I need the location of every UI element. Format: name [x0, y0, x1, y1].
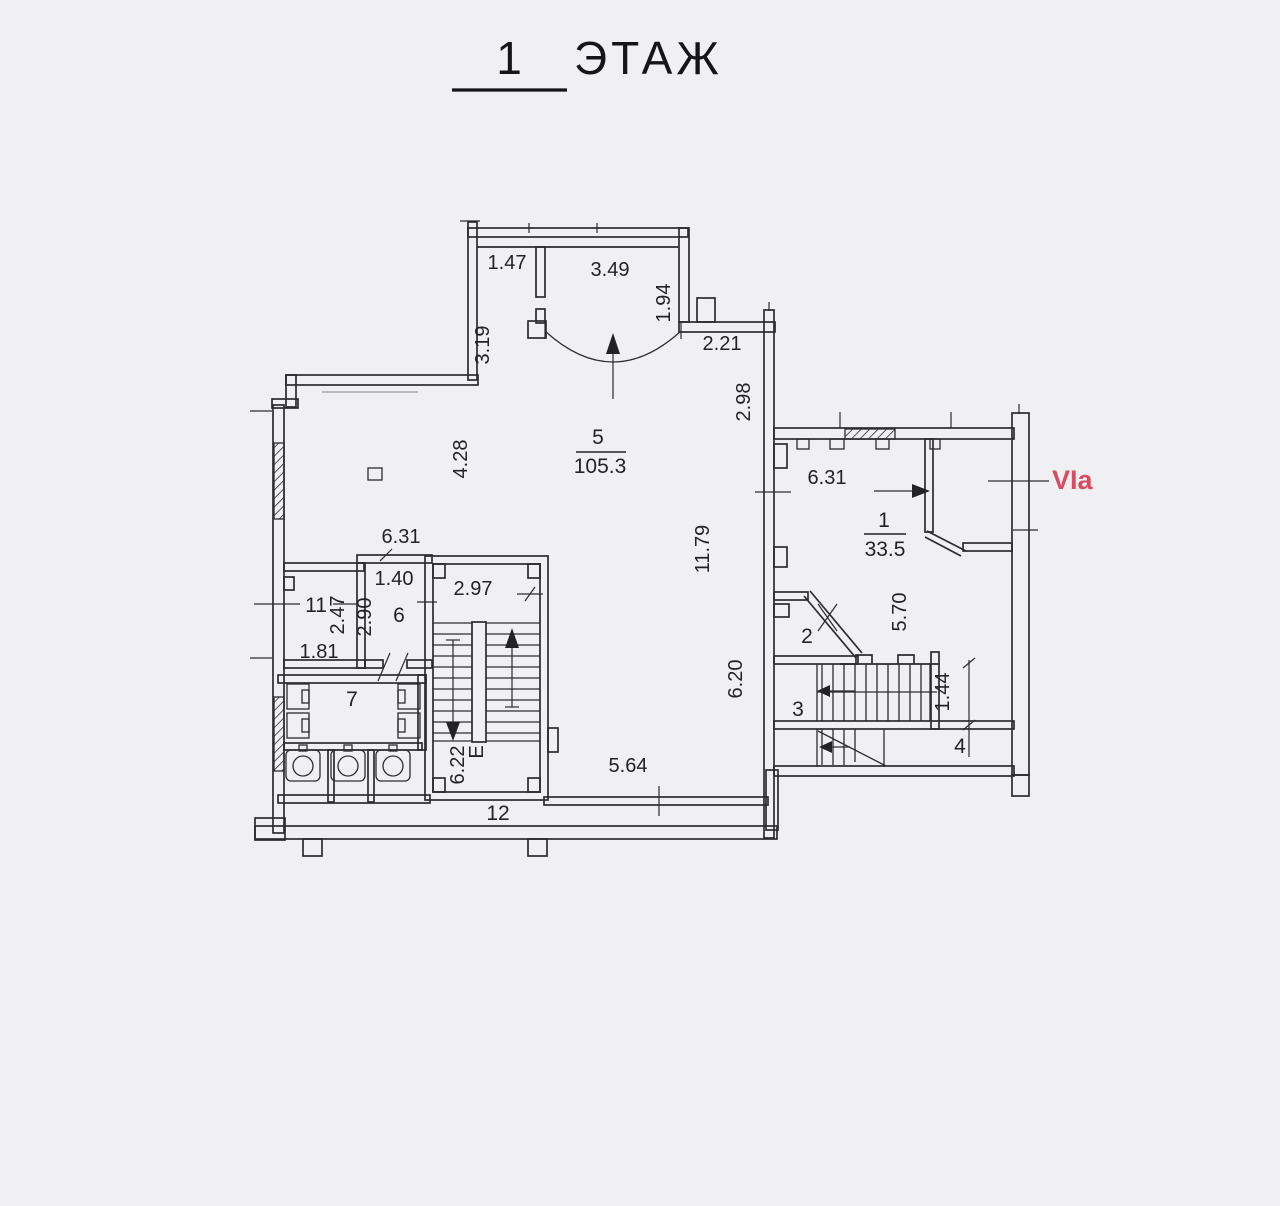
dim-hall-width: 6.31 [382, 526, 421, 548]
dim-link-width: 2.21 [703, 333, 742, 355]
sink-tap-icon [398, 690, 405, 703]
window-tick-4 [930, 439, 940, 449]
stair-room3-lower-arrow-icon [819, 741, 832, 753]
wall-vestibule-top [468, 228, 688, 237]
wall-vestibule-partition-upper [536, 247, 545, 297]
room-2-number: 2 [801, 625, 813, 648]
dim-hall-right-depth: 11.79 [692, 525, 714, 574]
alcove-arrow-right-icon [912, 484, 930, 498]
sink-icon [398, 713, 420, 738]
window-tick-1 [797, 439, 809, 449]
wall-wing-top [286, 375, 478, 385]
wall-room3-top-left [774, 656, 858, 664]
dim-room3-stair-width: 1.44 [932, 673, 954, 712]
wall-room2-pier [774, 604, 789, 617]
sink-icon [398, 684, 420, 709]
title: 1 ЭТАЖ [452, 32, 723, 90]
dim-entry-left-width: 1.47 [488, 252, 527, 274]
room-5-area: 105.3 [574, 455, 627, 478]
window-tick-3 [876, 439, 889, 449]
wall-room6-top [357, 555, 432, 563]
stairs-room3 [817, 664, 937, 767]
toilet-bowl-icon [338, 756, 358, 776]
room-11-number: 11 [305, 594, 327, 617]
wall-hatch-left-lower [274, 697, 284, 771]
unit-label: VIa [1052, 465, 1094, 495]
dim-room1-depth: 5.70 [889, 593, 911, 632]
dim-hall-lower-depth: 6.20 [725, 660, 747, 699]
wall-corridor-top-right [544, 797, 768, 805]
dim-room6-depth: 2.90 [354, 598, 376, 637]
stair-arrow-up-icon [505, 628, 519, 648]
wall-room6-bottom-b [407, 660, 432, 668]
wall-corner-pier [697, 298, 715, 322]
wall-room6-bottom-a [365, 660, 383, 668]
sink-tap-icon [302, 690, 309, 703]
dim-room6-width: 1.40 [375, 568, 414, 590]
stair-room3-upper-arrow-icon [817, 685, 830, 697]
room-3-number: 3 [792, 698, 804, 721]
floor-plan-drawing: 1 ЭТАЖ [0, 0, 1280, 1206]
column-symbol [368, 468, 382, 480]
wall-central-pier-2 [774, 547, 787, 567]
wall-wing-left [286, 375, 296, 407]
room-12-number: 12 [486, 802, 509, 825]
room-6-number: 6 [393, 604, 405, 627]
wall-central [764, 310, 774, 838]
wall-vestibule-right [679, 228, 689, 322]
wall-bottom-notch-1 [303, 839, 322, 856]
wall-bottom-notch-2 [528, 839, 547, 856]
room-7-number: 7 [346, 688, 358, 711]
dim-hall-upper-depth: 4.28 [450, 440, 472, 479]
toilet-bowl-icon [293, 756, 313, 776]
dim-entry-right-depth: 1.94 [653, 284, 675, 323]
wall-hatch-left-upper [274, 443, 284, 519]
stairwell-notch-br [528, 778, 540, 792]
stairwell-notch-bl [433, 778, 445, 792]
wall-bottom-exterior [255, 826, 777, 839]
wall-link [679, 322, 775, 332]
stairwell-flight-separator [472, 622, 486, 742]
wall-stair-pier [548, 728, 558, 752]
toilet-group [286, 745, 410, 781]
wall-corridor-top-left [278, 795, 430, 803]
title-floor-word: ЭТАЖ [574, 32, 723, 84]
wall-corner-block-bottom-left [255, 818, 285, 840]
wall-alcove-bottom [963, 543, 1012, 551]
sink-icon [287, 713, 309, 738]
dim-entry-left-depth: 3.19 [472, 326, 494, 365]
wall-room2-top [774, 592, 808, 600]
wall-hatch-room1-top [845, 429, 895, 439]
dim-link-depth: 2.98 [733, 383, 755, 422]
room-4-number: 4 [954, 735, 966, 758]
wall-room7-top [278, 675, 426, 683]
room-1-number: 1 [878, 509, 890, 532]
floor-plan-page: 1 ЭТАЖ [0, 0, 1280, 1206]
stairwell-letter: Е [466, 745, 488, 758]
wall-wc-stall-top [284, 743, 422, 750]
dim-room1-width: 6.31 [808, 467, 847, 489]
title-floor-number: 1 [496, 32, 522, 84]
wall-alcove-partition [925, 439, 933, 532]
wall-bottom-right [774, 766, 1014, 776]
wall-room11-top [284, 563, 364, 571]
wall-central-pier-1 [774, 444, 787, 468]
dim-entry-width: 3.49 [591, 259, 630, 281]
dim-hall-bottom-width: 5.64 [609, 755, 648, 777]
sink-icon [287, 684, 309, 709]
wall-room2-diagonal-b [810, 591, 862, 653]
stairwell-notch-tr [528, 564, 540, 578]
stairwell-notch-tl [433, 564, 445, 578]
doors-and-marks [250, 221, 1049, 816]
entry-arrow-up-icon [606, 333, 620, 354]
wall-room11-pier [284, 577, 294, 590]
window-tick-2 [830, 439, 844, 449]
door-tick-room7-a [378, 653, 390, 681]
toilet-bowl-icon [383, 756, 403, 776]
dim-stair-width: 2.97 [454, 578, 493, 600]
stair-arrow-down-icon [446, 722, 460, 741]
room-5-number: 5 [592, 426, 604, 449]
room-1-area: 33.5 [865, 538, 906, 561]
dim-room11-depth: 2.47 [327, 596, 349, 635]
wall-room3-room4 [774, 721, 1014, 729]
sink-tap-icon [302, 719, 309, 732]
wall-pilaster-bottom-right [1012, 775, 1029, 796]
sink-tap-icon [398, 719, 405, 732]
dim-room11-width: 1.81 [300, 641, 339, 663]
